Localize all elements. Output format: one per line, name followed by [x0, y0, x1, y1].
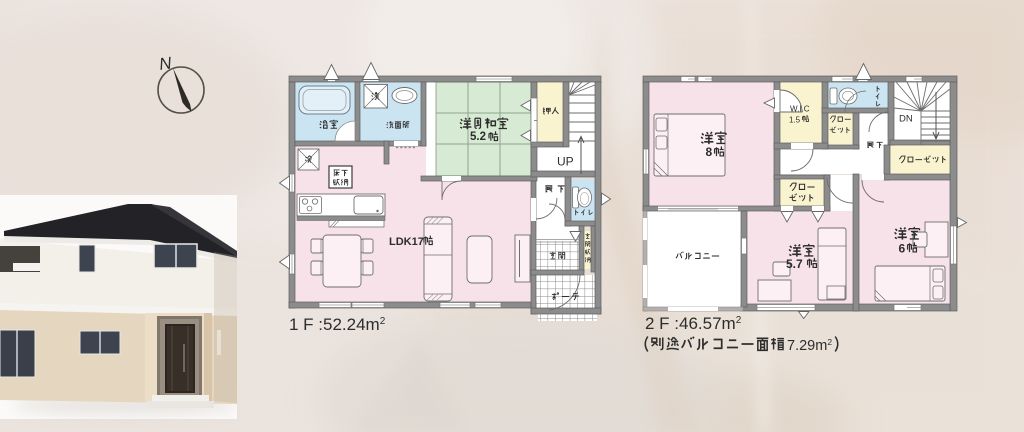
svg-text:LDK17: LDK17: [389, 236, 424, 248]
svg-text:7.29m2: 7.29m2: [787, 337, 832, 354]
svg-text:5.7: 5.7: [786, 257, 803, 271]
svg-text:1.5: 1.5: [789, 116, 801, 125]
svg-text:6: 6: [899, 242, 906, 256]
svg-text:UP: UP: [557, 155, 574, 169]
svg-text:DN: DN: [899, 114, 913, 125]
svg-text:5.2: 5.2: [470, 131, 486, 143]
svg-text:1 F :52.24m2: 1 F :52.24m2: [289, 315, 386, 334]
svg-text:2 F :46.57m2: 2 F :46.57m2: [645, 314, 742, 333]
svg-text:W.I.C: W.I.C: [790, 105, 810, 114]
svg-text:8: 8: [706, 145, 713, 159]
